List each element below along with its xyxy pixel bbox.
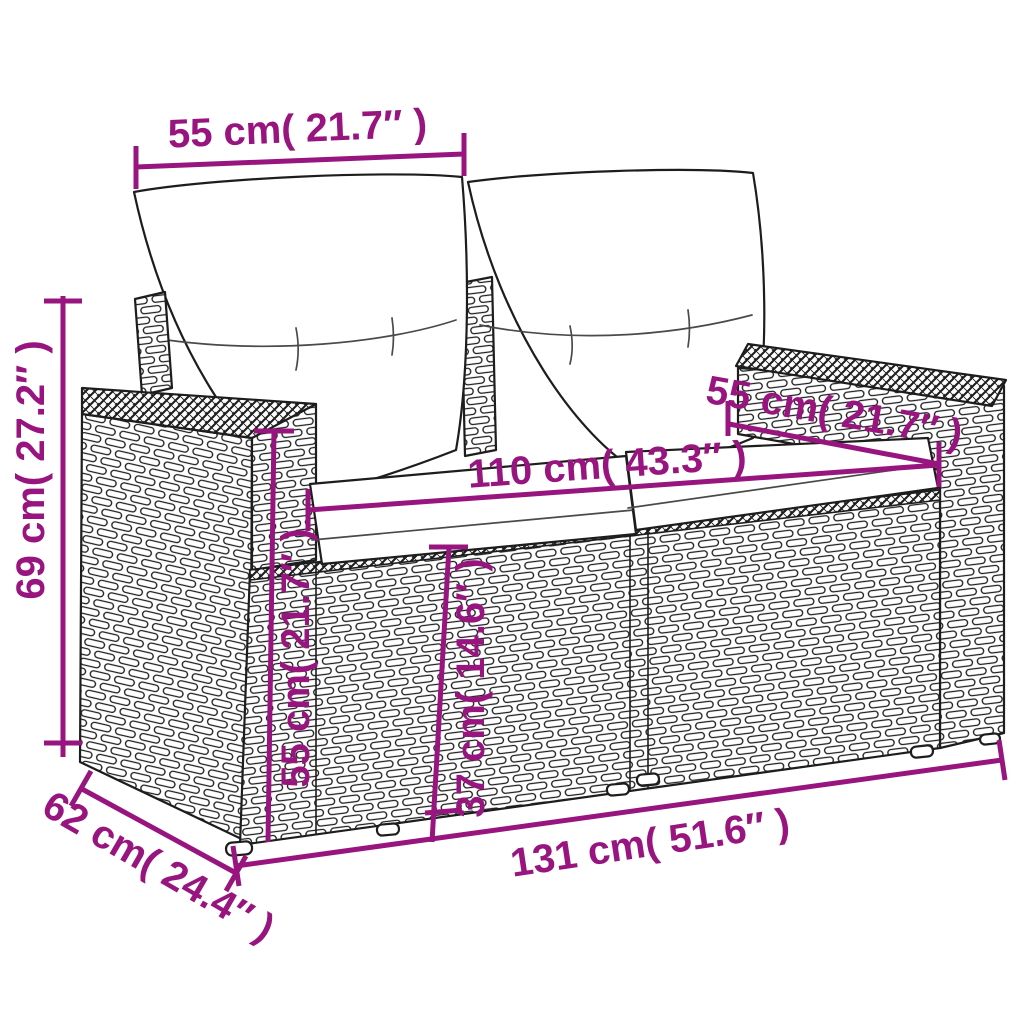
sofa-illustration [80, 170, 1006, 856]
product-dimension-diagram: 55 cm( 21.7″ ) 69 cm( 27.2″ ) 55 cm( 21.… [0, 0, 1024, 1024]
dimension-label: 131 cm( 51.6″ ) [508, 801, 793, 886]
dimension-label: 55 cm( 21.7″ ) [167, 101, 428, 156]
sofa-foot [377, 823, 400, 836]
back-post-left [135, 292, 172, 395]
diagram-canvas: 55 cm( 21.7″ ) 69 cm( 27.2″ ) 55 cm( 21.… [0, 0, 1024, 1024]
dimension-overall-height: 69 cm( 27.2″ ) [9, 296, 82, 757]
sofa-foot [910, 745, 933, 758]
sofa-foot [226, 841, 253, 856]
dimension-label: 37 cm( 14.6″ ) [449, 558, 493, 817]
left-armrest-side [80, 414, 252, 843]
dimension-label: 55 cm( 21.7″ ) [274, 528, 318, 787]
sofa-foot [607, 783, 630, 796]
dimension-label: 69 cm( 27.2″ ) [9, 340, 53, 599]
sofa-foot [637, 773, 660, 786]
